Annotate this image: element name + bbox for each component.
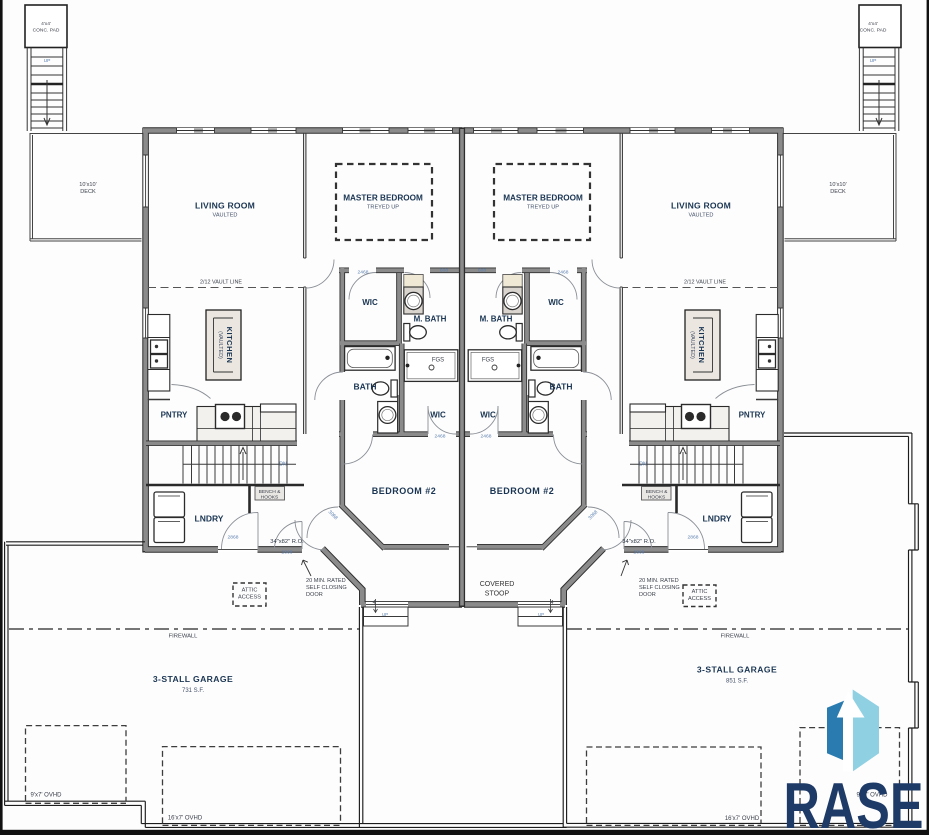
svg-text:VAULTED: VAULTED bbox=[689, 213, 714, 219]
svg-text:2868: 2868 bbox=[688, 535, 699, 541]
svg-text:4'x4': 4'x4' bbox=[868, 21, 878, 27]
svg-text:UP: UP bbox=[44, 58, 51, 64]
svg-text:M. BATH: M. BATH bbox=[480, 315, 513, 324]
svg-text:608: 608 bbox=[440, 268, 448, 274]
svg-text:CONC. PAD: CONC. PAD bbox=[860, 28, 887, 34]
svg-text:34"x82" R.O.: 34"x82" R.O. bbox=[622, 539, 656, 545]
svg-text:2468: 2468 bbox=[435, 434, 446, 440]
svg-text:RASE: RASE bbox=[784, 770, 924, 835]
svg-text:CONC. PAD: CONC. PAD bbox=[33, 28, 60, 34]
svg-text:BEDROOM #2: BEDROOM #2 bbox=[372, 486, 437, 496]
svg-text:2868: 2868 bbox=[228, 535, 239, 541]
svg-text:2868: 2868 bbox=[634, 550, 645, 556]
svg-text:BENCH &: BENCH & bbox=[646, 489, 668, 495]
svg-text:PNTRY: PNTRY bbox=[739, 411, 766, 420]
svg-text:DOOR: DOOR bbox=[639, 592, 656, 598]
svg-text:SELF CLOSING: SELF CLOSING bbox=[306, 585, 347, 591]
svg-text:2/12 VAULT LINE: 2/12 VAULT LINE bbox=[684, 280, 726, 286]
svg-text:3068: 3068 bbox=[587, 509, 599, 521]
svg-text:ATTIC: ATTIC bbox=[692, 589, 708, 595]
svg-text:20 MIN. RATED: 20 MIN. RATED bbox=[306, 578, 346, 584]
svg-text:UP: UP bbox=[538, 612, 544, 617]
svg-text:851 S.F.: 851 S.F. bbox=[726, 679, 748, 685]
svg-text:3-STALL GARAGE: 3-STALL GARAGE bbox=[697, 665, 777, 675]
svg-text:KITCHEN: KITCHEN bbox=[697, 327, 706, 364]
svg-text:FIREWALL: FIREWALL bbox=[169, 634, 199, 640]
svg-text:3-STALL GARAGE: 3-STALL GARAGE bbox=[153, 674, 233, 684]
svg-text:4: 4 bbox=[551, 600, 554, 606]
svg-text:16'x7' OVHD: 16'x7' OVHD bbox=[725, 816, 760, 822]
svg-text:TREYED UP: TREYED UP bbox=[367, 205, 399, 211]
svg-text:WIC: WIC bbox=[548, 298, 564, 307]
svg-text:MASTER BEDROOM: MASTER BEDROOM bbox=[343, 194, 423, 203]
svg-text:WIC: WIC bbox=[430, 411, 446, 420]
svg-text:BEDROOM #2: BEDROOM #2 bbox=[490, 486, 555, 496]
svg-text:16'x7' OVHD: 16'x7' OVHD bbox=[168, 816, 203, 822]
svg-text:(VAULTED): (VAULTED) bbox=[217, 331, 223, 359]
svg-text:731 S.F.: 731 S.F. bbox=[182, 688, 204, 694]
svg-text:LNDRY: LNDRY bbox=[703, 514, 732, 524]
svg-text:BENCH &: BENCH & bbox=[259, 489, 281, 495]
svg-text:DOOR: DOOR bbox=[306, 592, 323, 598]
svg-text:M. BATH: M. BATH bbox=[414, 315, 447, 324]
svg-text:TREYED UP: TREYED UP bbox=[527, 205, 559, 211]
svg-text:2468: 2468 bbox=[558, 270, 569, 276]
svg-text:WIC: WIC bbox=[480, 411, 496, 420]
svg-text:2468: 2468 bbox=[481, 434, 492, 440]
svg-text:HOOKS: HOOKS bbox=[261, 495, 279, 501]
svg-text:2868: 2868 bbox=[282, 550, 293, 556]
svg-text:4: 4 bbox=[373, 600, 376, 606]
svg-text:VAULTED: VAULTED bbox=[213, 213, 238, 219]
svg-text:LIVING ROOM: LIVING ROOM bbox=[671, 201, 731, 211]
svg-text:UP: UP bbox=[382, 612, 388, 617]
svg-text:4'x4': 4'x4' bbox=[41, 21, 51, 27]
svg-text:ACCESS: ACCESS bbox=[238, 595, 261, 601]
svg-text:34"x82" R.O.: 34"x82" R.O. bbox=[270, 539, 304, 545]
svg-text:9'x7' OVHD: 9'x7' OVHD bbox=[31, 793, 63, 799]
svg-text:2468: 2468 bbox=[358, 270, 369, 276]
svg-text:HOOKS: HOOKS bbox=[648, 495, 666, 501]
svg-text:3068: 3068 bbox=[327, 509, 339, 521]
svg-text:COVERED: COVERED bbox=[480, 581, 515, 588]
svg-text:2/12 VAULT LINE: 2/12 VAULT LINE bbox=[200, 280, 242, 286]
svg-text:LIVING ROOM: LIVING ROOM bbox=[195, 201, 255, 211]
svg-text:BATH: BATH bbox=[550, 382, 573, 392]
svg-text:SELF CLOSING: SELF CLOSING bbox=[639, 585, 680, 591]
svg-text:20 MIN. RATED: 20 MIN. RATED bbox=[639, 578, 679, 584]
svg-text:10'x10': 10'x10' bbox=[829, 182, 846, 188]
svg-text:WIC: WIC bbox=[362, 298, 378, 307]
svg-text:UP: UP bbox=[870, 58, 877, 64]
svg-text:(VAULTED): (VAULTED) bbox=[689, 331, 695, 359]
svg-text:608: 608 bbox=[478, 268, 486, 274]
svg-text:DN: DN bbox=[639, 462, 647, 468]
svg-text:MASTER BEDROOM: MASTER BEDROOM bbox=[503, 194, 583, 203]
svg-text:DECK: DECK bbox=[80, 189, 96, 195]
svg-text:DECK: DECK bbox=[830, 189, 846, 195]
svg-text:FGS: FGS bbox=[482, 358, 494, 364]
svg-text:LNDRY: LNDRY bbox=[195, 514, 224, 524]
svg-text:BATH: BATH bbox=[354, 382, 377, 392]
svg-text:STOOP: STOOP bbox=[485, 591, 510, 598]
svg-text:10'x10': 10'x10' bbox=[79, 182, 96, 188]
svg-text:FGS: FGS bbox=[432, 358, 444, 364]
svg-text:ACCESS: ACCESS bbox=[688, 596, 711, 602]
svg-text:PNTRY: PNTRY bbox=[161, 411, 188, 420]
svg-text:ATTIC: ATTIC bbox=[242, 588, 258, 594]
svg-text:KITCHEN: KITCHEN bbox=[225, 327, 234, 364]
svg-text:FIREWALL: FIREWALL bbox=[721, 634, 751, 640]
svg-text:DN: DN bbox=[279, 462, 287, 468]
